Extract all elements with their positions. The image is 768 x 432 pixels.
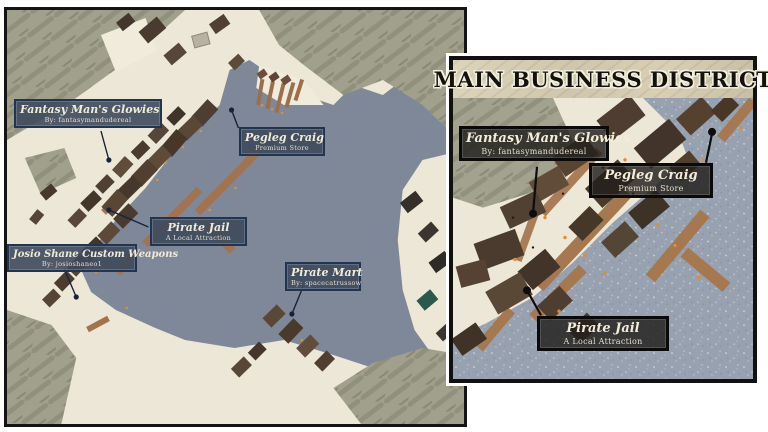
inset-label-fantasy-mans-glowies: Fantasy Man's Glowies By: fantasymandude… <box>459 126 609 161</box>
map-label-pegleg-craig: Pegleg Craig Premium Store <box>239 127 325 156</box>
label-subtitle: A Local Attraction <box>544 337 662 346</box>
label-subtitle: Premium Store <box>596 184 706 193</box>
label-subtitle: By: fantasymandudereal <box>466 147 602 156</box>
inset-label-pirate-jail: Pirate Jail A Local Attraction <box>537 316 669 351</box>
label-title: Fantasy Man's Glowies <box>466 132 602 147</box>
overview-map-panel[interactable]: Fantasy Man's Glowies By: fantasymandude… <box>4 7 467 427</box>
label-title: Josio Shane Custom Weapons <box>13 249 131 261</box>
map-poster: Fantasy Man's Glowies By: fantasymandude… <box>0 0 768 432</box>
label-subtitle: A Local Attraction <box>156 235 241 242</box>
label-title: Fantasy Man's Glowies <box>20 104 156 117</box>
district-inset-panel[interactable]: MAIN BUSINESS DISTRICT <box>449 56 757 383</box>
map-label-pirate-jail: Pirate Jail A Local Attraction <box>150 217 247 246</box>
label-title: Pirate Jail <box>544 322 662 337</box>
label-subtitle: Premium Store <box>245 145 319 152</box>
label-title: Pirate Jail <box>156 222 241 235</box>
map-label-pirate-mart: Pirate Mart By: spacecatrussow <box>285 262 361 291</box>
inset-label-pegleg-craig: Pegleg Craig Premium Store <box>589 163 713 198</box>
label-subtitle: By: spacecatrussow <box>291 280 355 287</box>
label-title: Pirate Mart <box>291 267 355 280</box>
label-title: Pegleg Craig <box>596 169 706 184</box>
map-label-josio-shane-custom-weapons: Josio Shane Custom Weapons By: josioshan… <box>7 244 137 272</box>
map-label-fantasy-mans-glowies: Fantasy Man's Glowies By: fantasymandude… <box>14 99 162 128</box>
label-title: Pegleg Craig <box>245 132 319 145</box>
label-subtitle: By: fantasymandudereal <box>20 117 156 124</box>
label-subtitle: By: josioshaneo1 <box>13 261 131 268</box>
inset-title: MAIN BUSINESS DISTRICT <box>453 60 753 100</box>
